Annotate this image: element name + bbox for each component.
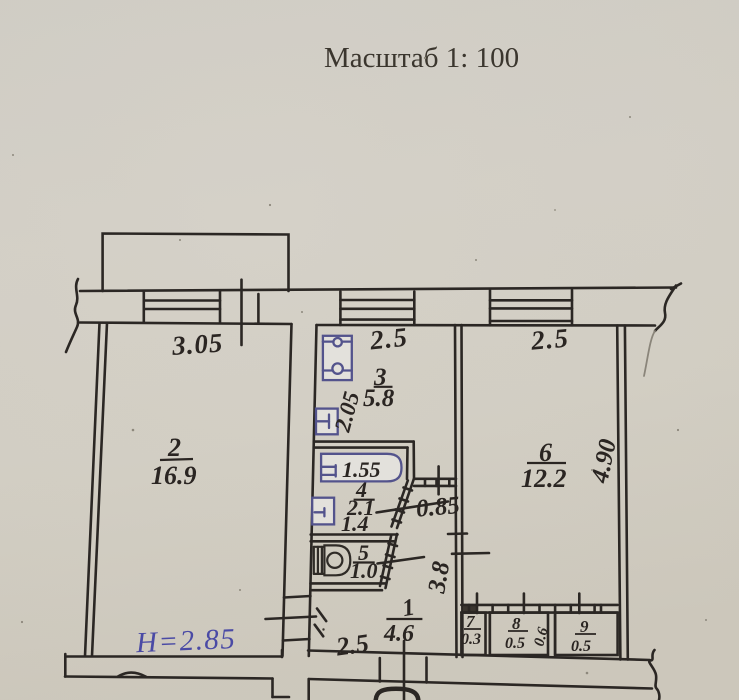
svg-text:2.5: 2.5 (529, 323, 571, 356)
svg-text:12.2: 12.2 (521, 464, 567, 493)
svg-text:4.6: 4.6 (383, 621, 414, 647)
svg-text:16.9: 16.9 (151, 461, 197, 490)
svg-text:3.8: 3.8 (423, 559, 455, 596)
svg-text:2: 2 (167, 433, 181, 462)
svg-text:1.55: 1.55 (342, 457, 381, 482)
svg-text:1.0: 1.0 (350, 558, 378, 583)
svg-text:2.5: 2.5 (368, 322, 410, 356)
svg-text:2.5: 2.5 (333, 628, 370, 661)
svg-text:0.85: 0.85 (415, 492, 461, 523)
svg-text:0.5: 0.5 (505, 635, 525, 652)
svg-text:0.3: 0.3 (461, 631, 481, 648)
svg-text:3.05: 3.05 (170, 327, 224, 361)
svg-text:5.8: 5.8 (363, 385, 395, 412)
svg-text:Н=2.85: Н=2.85 (134, 623, 237, 659)
svg-text:0.5: 0.5 (571, 638, 591, 655)
svg-text:1.4: 1.4 (341, 511, 369, 536)
svg-text:Масштаб 1: 100: Масштаб 1: 100 (324, 42, 519, 74)
